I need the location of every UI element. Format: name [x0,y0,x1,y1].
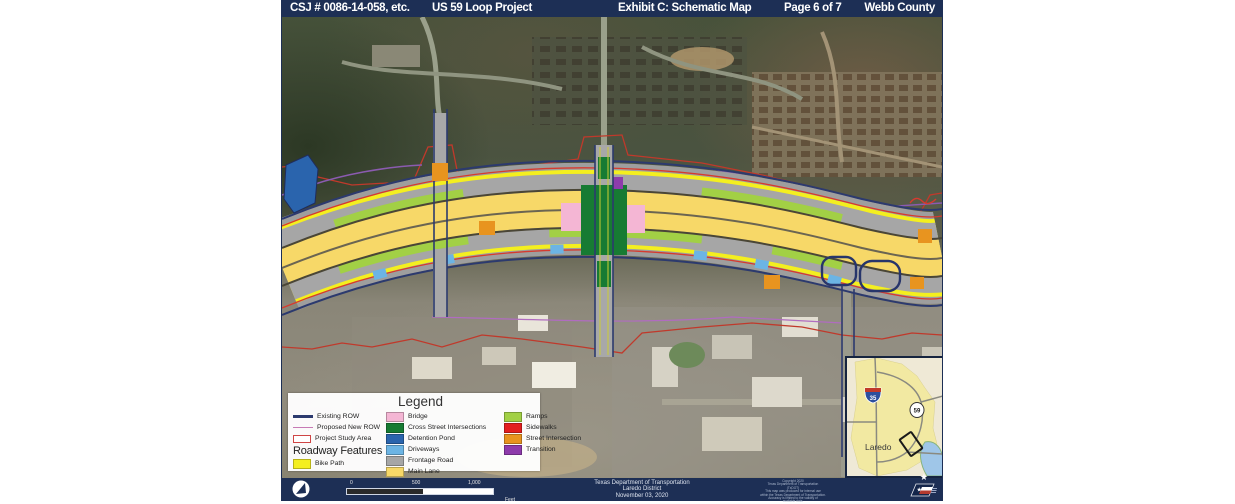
scale-0: 0 [350,480,353,486]
ramps-swatch [504,412,522,422]
map-date: November 03, 2020 [562,493,722,499]
inset-lake [921,442,942,476]
scale-bar-graphic: Feet [346,488,494,495]
legend-title: Legend [398,394,443,409]
street-intersection-swatch [504,434,522,444]
scale-bar: 0 500 1,000 Feet [346,480,496,495]
inset-city-label: Laredo [865,442,892,452]
aerial-map: Legend Existing ROW Proposed New ROW Pro… [282,17,942,478]
legend-item-transition: Transition [504,444,624,455]
us59-shield: 59 [910,403,924,418]
legend-col-areas: Bridge Cross Street Intersections Detent… [386,411,502,477]
legend-item-sidewalks: Sidewalks [504,422,624,433]
txdot-flag-logo: ★ [908,482,938,497]
driveways-swatch [386,445,404,455]
legend-item-main-lane: Main Lane [386,466,502,477]
legend-item-street-intersection: Street Intersection [504,433,624,444]
legend-col-lines: Existing ROW Proposed New ROW Project St… [293,411,385,469]
bridge-pink-east [627,205,645,233]
cross-street-intersection-green [581,185,627,255]
legend-item-study-area: Project Study Area [293,433,385,444]
footer-credits: Texas Department of Transportation Lared… [562,480,722,499]
bike-path-swatch [293,459,311,469]
inset-map-graphics: 35 59 Laredo [847,358,942,476]
scale-unit: Feet [505,497,515,503]
legend-item-driveways: Driveways [386,444,502,455]
footer-bar: 0 500 1,000 Feet Texas Department of Tra… [282,478,942,500]
proposed-row-swatch [293,427,313,429]
main-lane-swatch [386,467,404,477]
street-intersection-orange [432,163,448,181]
detention-pond-swatch [386,434,404,444]
existing-row-swatch [293,415,313,418]
title-banner: CSJ # 0086-14-058, etc. US 59 Loop Proje… [282,0,942,17]
scale-500: 500 [412,480,420,486]
transition-purple [613,177,623,189]
roadway-features-heading: Roadway Features [293,444,385,458]
exhibit-title: Exhibit C: Schematic Map [618,0,751,17]
project-name: US 59 Loop Project [432,0,532,17]
svg-text:★: ★ [917,487,922,494]
study-area-swatch [293,435,311,443]
legend-item-proposed-row: Proposed New ROW [293,422,385,433]
legend-box: Legend Existing ROW Proposed New ROW Pro… [288,393,540,471]
legend-item-cross-street: Cross Street Intersections [386,422,502,433]
legend-item-ramps: Ramps [504,411,624,422]
legend-col-features: Ramps Sidewalks Street Intersection Tran… [504,411,624,455]
legend-item-existing-row: Existing ROW [293,411,385,422]
us59-number: 59 [914,409,921,415]
cross-street-swatch [386,423,404,433]
detention-pond [284,155,318,213]
map-sheet: CSJ # 0086-14-058, etc. US 59 Loop Proje… [282,0,942,500]
transition-swatch [504,445,522,455]
bridge-pink-west [561,203,581,231]
sidewalk-detail [910,198,936,203]
sidewalks-swatch [504,423,522,433]
csj-number: CSJ # 0086-14-058, etc. [290,0,410,17]
legend-item-frontage-road: Frontage Road [386,455,502,466]
scale-1000: 1,000 [468,480,481,486]
county-name: Webb County [864,0,935,17]
copyright-fineprint: Copyright 2020 Texas Department of Trans… [745,480,841,504]
legend-item-bike-path: Bike Path [293,458,385,469]
legend-item-detention-pond: Detention Pond [386,433,502,444]
legend-item-bridge: Bridge [386,411,502,422]
page-indicator: Page 6 of 7 [784,0,841,17]
bridge-swatch [386,412,404,422]
frontage-road-swatch [386,456,404,466]
inset-locator-map: 35 59 Laredo [845,356,942,478]
north-arrow-logo [292,480,310,498]
i35-number: 35 [870,396,877,402]
